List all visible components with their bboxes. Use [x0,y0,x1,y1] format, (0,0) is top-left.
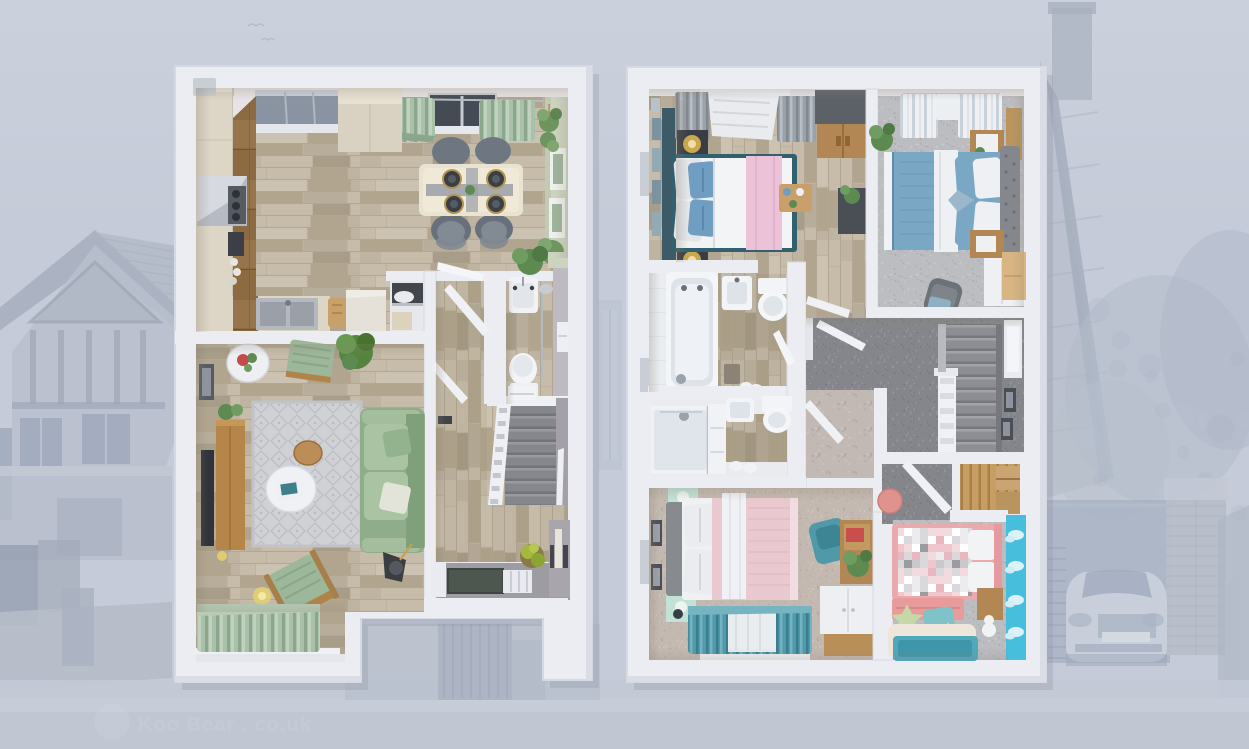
svg-text:Koo Bear . co.uk: Koo Bear . co.uk [138,714,312,736]
